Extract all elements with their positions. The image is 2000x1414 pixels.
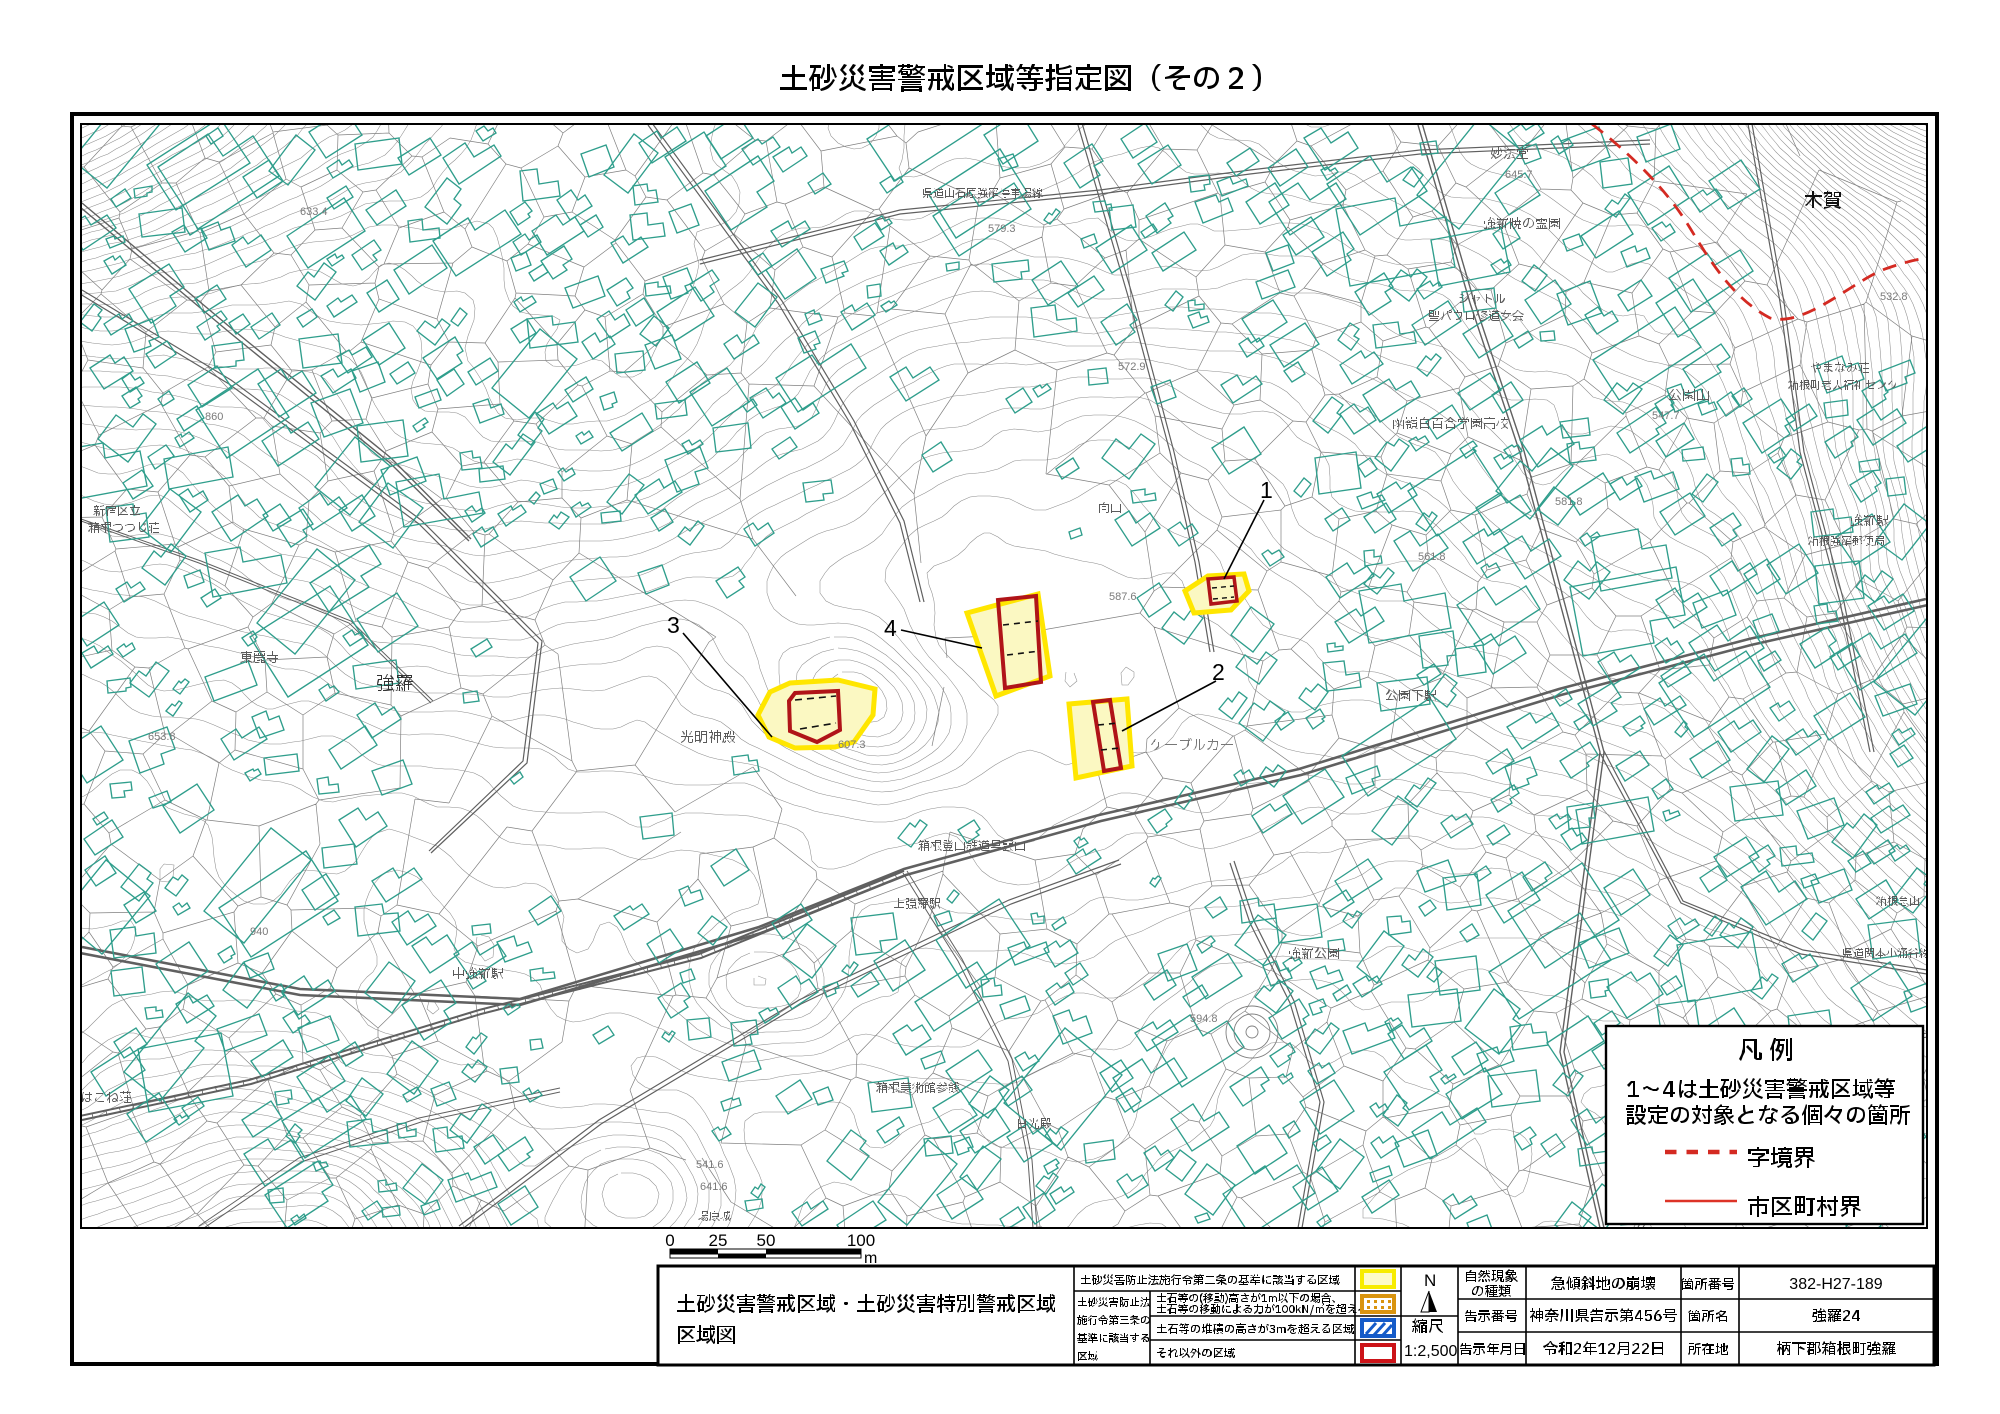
svg-text:561.8: 561.8: [1418, 551, 1446, 563]
svg-text:633.4: 633.4: [300, 206, 328, 218]
svg-text:541.6: 541.6: [696, 1159, 724, 1171]
svg-text:1: 1: [1260, 477, 1273, 503]
svg-text:1:2,500: 1:2,500: [1404, 1343, 1457, 1360]
svg-text:594.8: 594.8: [1190, 1013, 1218, 1025]
svg-text:N: N: [1424, 1271, 1436, 1290]
svg-text:100: 100: [847, 1231, 875, 1250]
svg-text:532.8: 532.8: [1880, 291, 1908, 303]
svg-text:50: 50: [757, 1231, 776, 1250]
svg-text:581.8: 581.8: [1555, 496, 1583, 508]
svg-text:653.8: 653.8: [148, 731, 176, 743]
svg-text:m: m: [864, 1250, 877, 1267]
svg-text:645.7: 645.7: [1505, 169, 1533, 181]
svg-text:547.7: 547.7: [1652, 410, 1680, 422]
svg-text:25: 25: [709, 1231, 728, 1250]
svg-text:0: 0: [665, 1231, 674, 1250]
svg-text:641.6: 641.6: [700, 1181, 728, 1193]
svg-text:587.6: 587.6: [1109, 591, 1137, 603]
svg-text:860: 860: [205, 411, 223, 423]
svg-text:2: 2: [1212, 659, 1225, 685]
svg-text:382-H27-189: 382-H27-189: [1789, 1276, 1883, 1293]
svg-text:3: 3: [667, 612, 680, 638]
svg-text:607.3: 607.3: [838, 739, 866, 751]
svg-text:579.3: 579.3: [988, 223, 1016, 235]
svg-text:940: 940: [250, 926, 268, 938]
svg-text:572.9: 572.9: [1118, 361, 1146, 373]
svg-text:4: 4: [884, 615, 897, 641]
